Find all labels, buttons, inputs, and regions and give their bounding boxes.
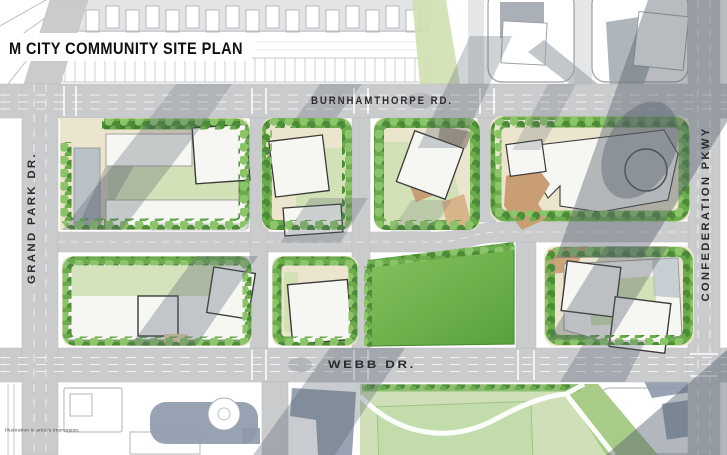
tower-footprint — [269, 135, 329, 197]
roundabout — [208, 398, 240, 430]
disclaimer: Illustration is artist's impression. — [5, 428, 80, 434]
site-plan-page: M CITY COMMUNITY SITE PLAN BURNHAMTHORPE… — [0, 0, 727, 455]
road-label-burnhamthorpe: BURNHAMTHORPE RD. — [311, 95, 453, 107]
parking-lot — [62, 58, 430, 82]
road-label-grand-park: GRAND PARK DR. — [26, 152, 38, 284]
central-park — [368, 246, 514, 346]
road-internal-3b — [516, 242, 536, 348]
tower-footprint — [287, 279, 352, 344]
site-plan-canvas: M CITY COMMUNITY SITE PLAN BURNHAMTHORPE… — [0, 0, 727, 455]
block-g — [272, 256, 358, 346]
road-label-confederation: CONFEDERATION PKWY — [700, 127, 712, 302]
page-title: M CITY COMMUNITY SITE PLAN — [9, 40, 243, 58]
road-label-webb: WEBB DR. — [328, 359, 416, 371]
context-building-blue — [150, 402, 258, 444]
